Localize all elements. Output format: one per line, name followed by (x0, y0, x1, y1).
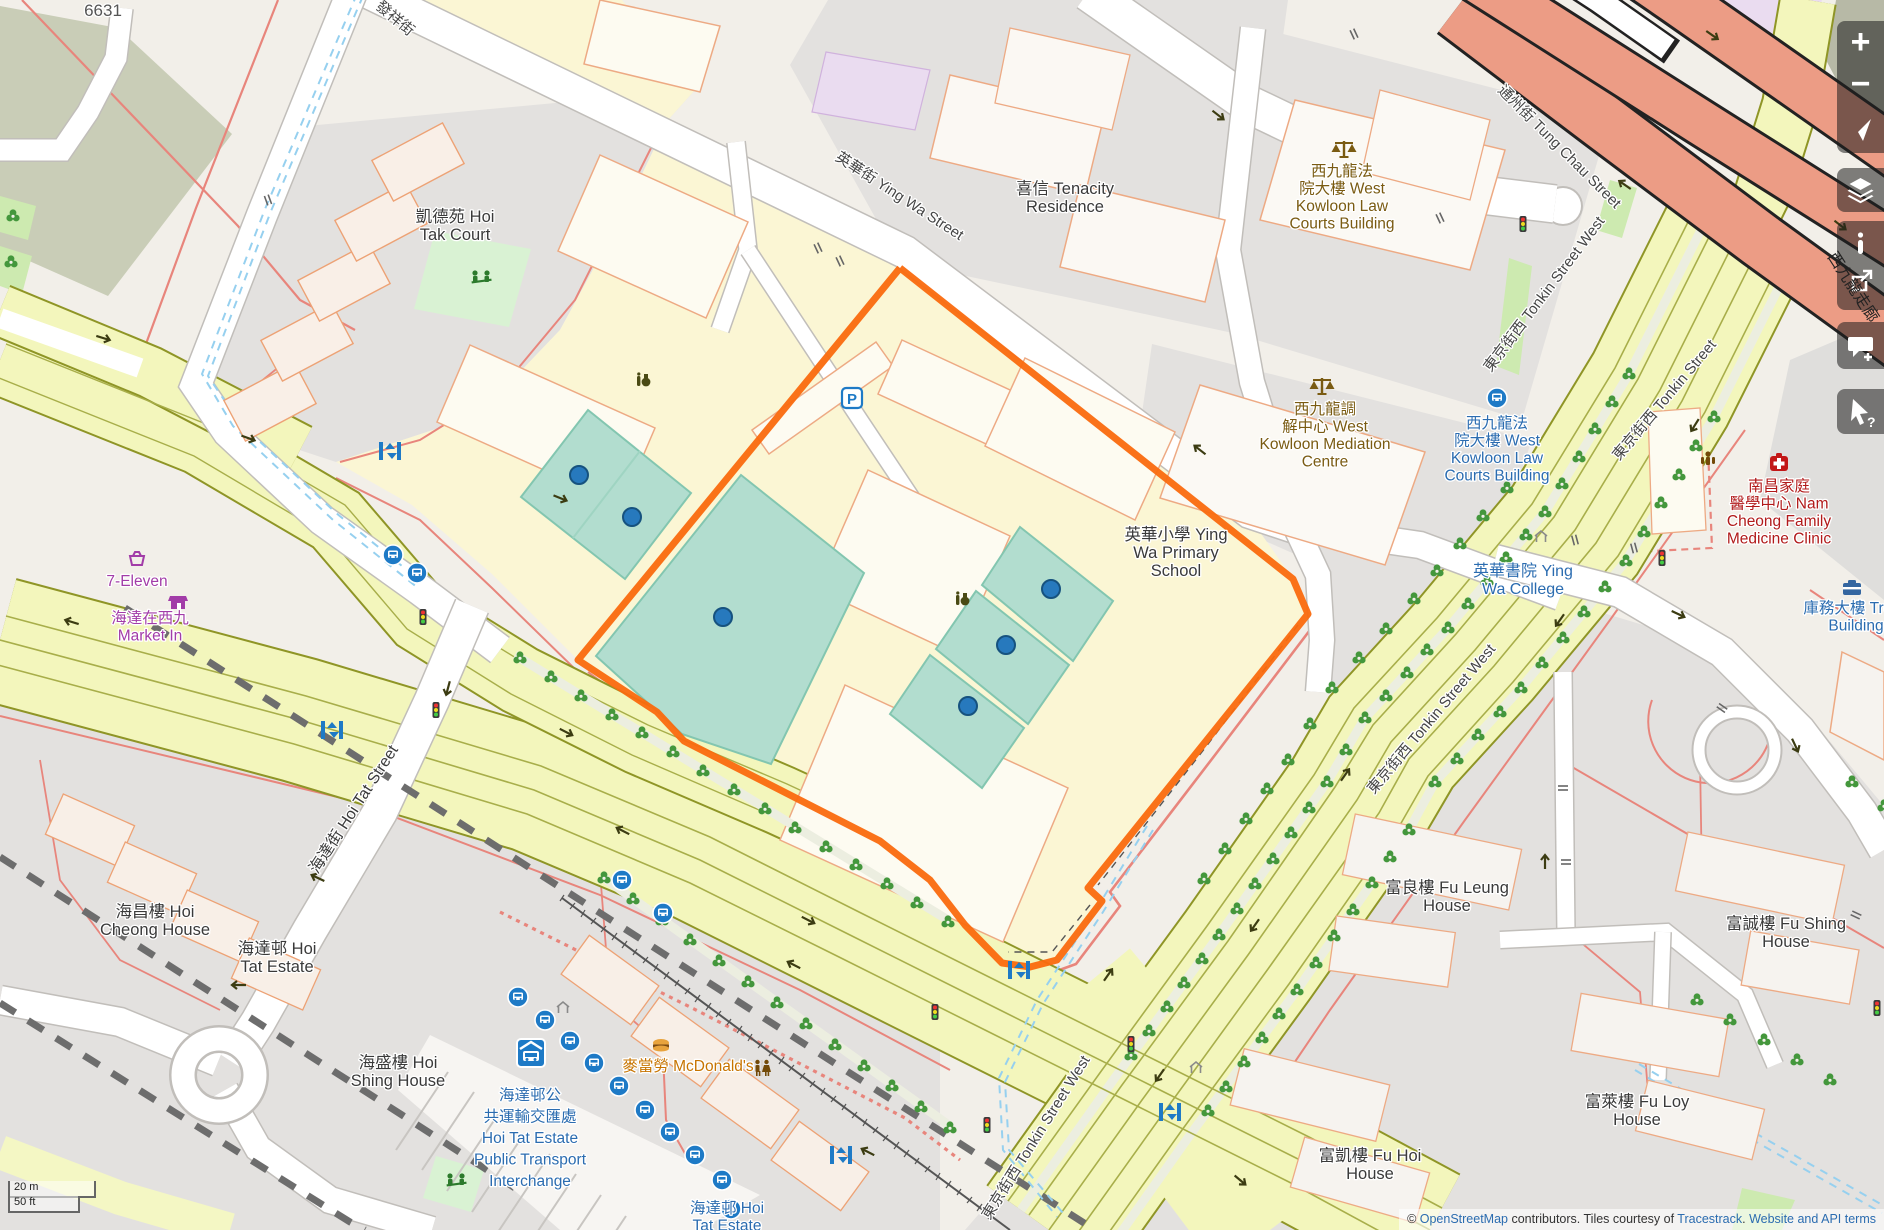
svg-text:海達邨 HoiTat Estate: 海達邨 HoiTat Estate (238, 939, 317, 976)
svg-text:海昌樓 HoiCheong House: 海昌樓 HoiCheong House (100, 902, 210, 939)
svg-text:海達在西九Market In: 海達在西九Market In (111, 609, 189, 645)
svg-text:喜信 TenacityResidence: 喜信 TenacityResidence (1016, 179, 1115, 216)
svg-text:麥當勞 McDonald's: 麥當勞 McDonald's (622, 1057, 754, 1075)
svg-text:P: P (847, 391, 857, 408)
svg-text:7-Eleven: 7-Eleven (106, 573, 167, 590)
svg-text:海盛樓 HoiShing House: 海盛樓 HoiShing House (351, 1053, 445, 1090)
svg-text:?: ? (1867, 414, 1876, 430)
svg-text:凱德苑 HoiTak Court: 凱德苑 HoiTak Court (416, 207, 495, 244)
svg-text:海達邨 HoiTat Estate: 海達邨 HoiTat Estate (690, 1199, 764, 1230)
svg-text:6631: 6631 (84, 1, 122, 20)
